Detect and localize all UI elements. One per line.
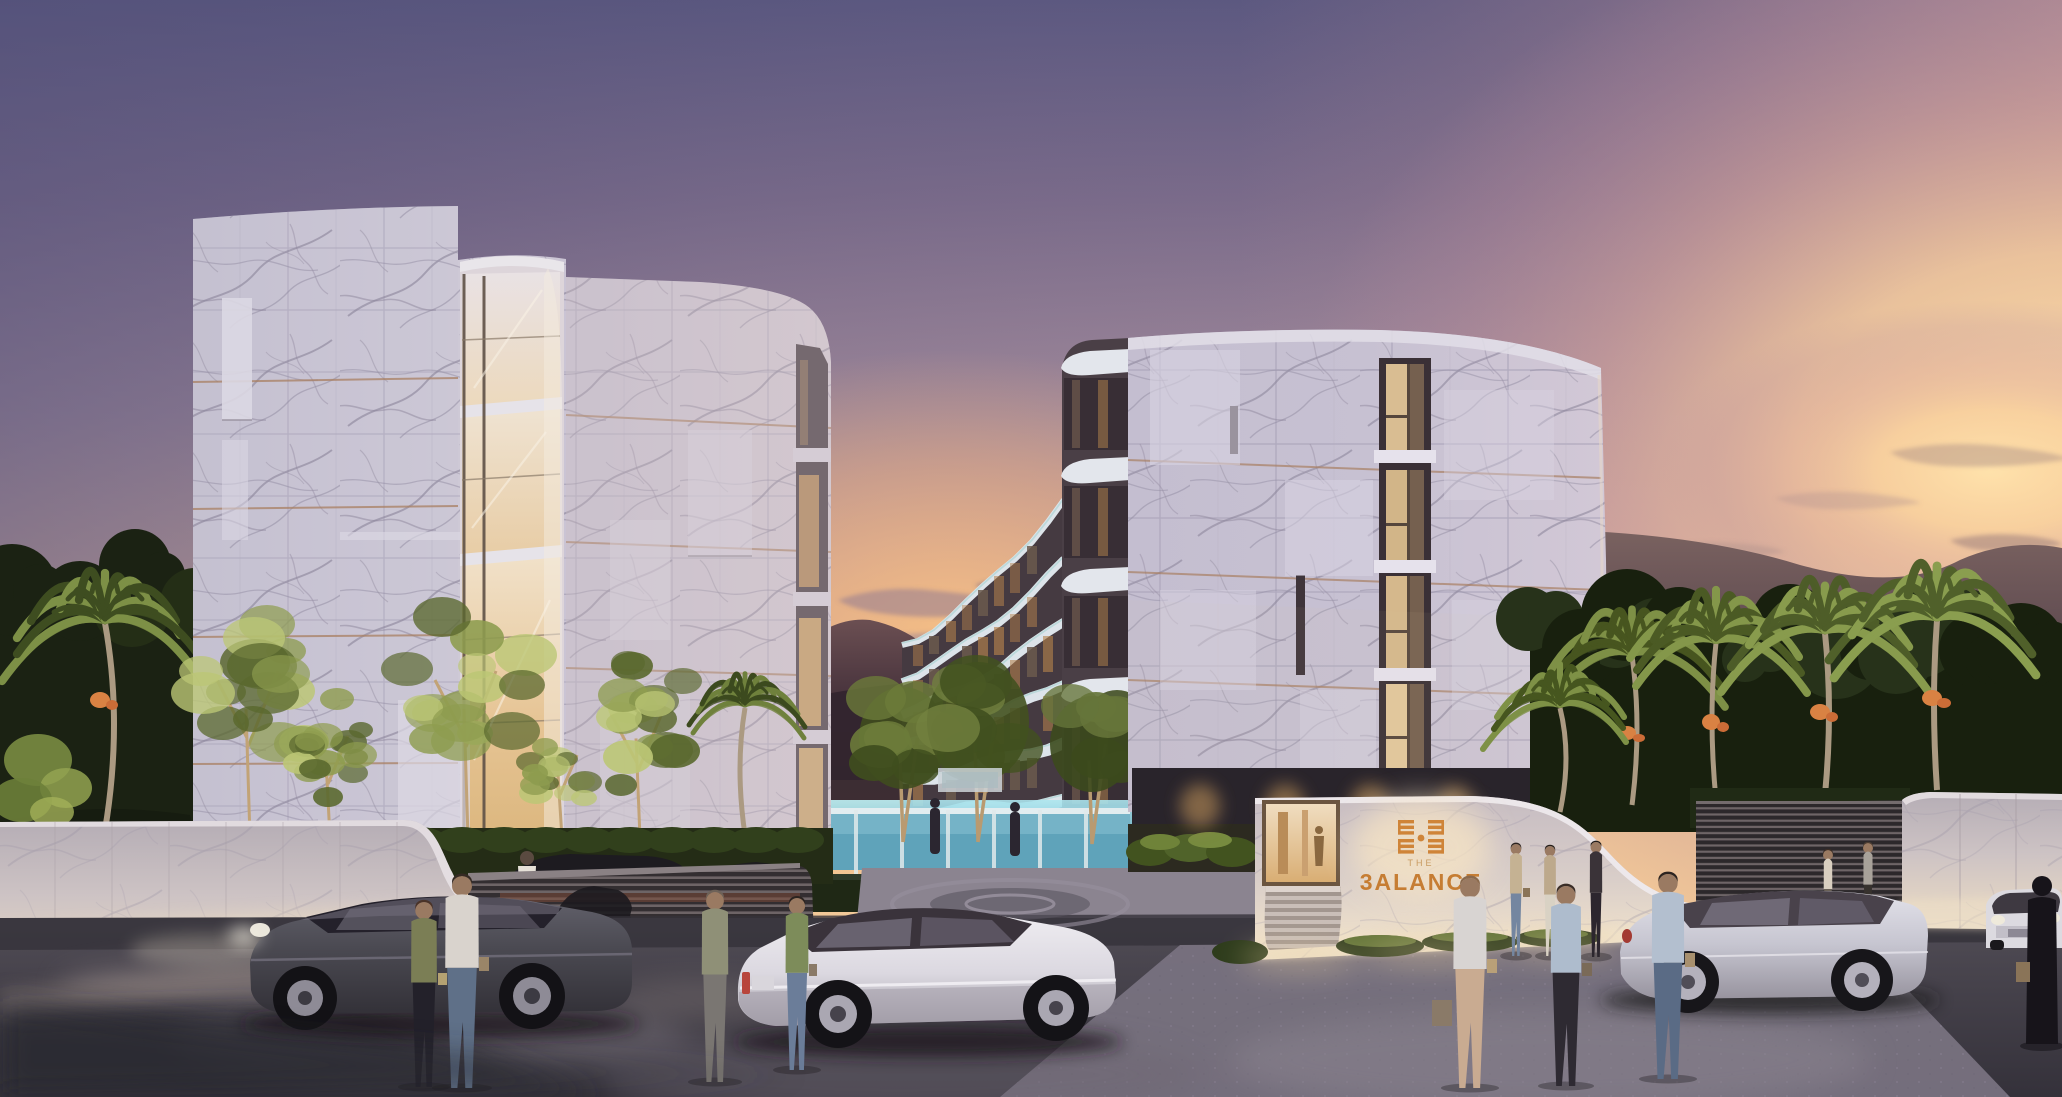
svg-text:THE: THE	[1408, 858, 1435, 868]
